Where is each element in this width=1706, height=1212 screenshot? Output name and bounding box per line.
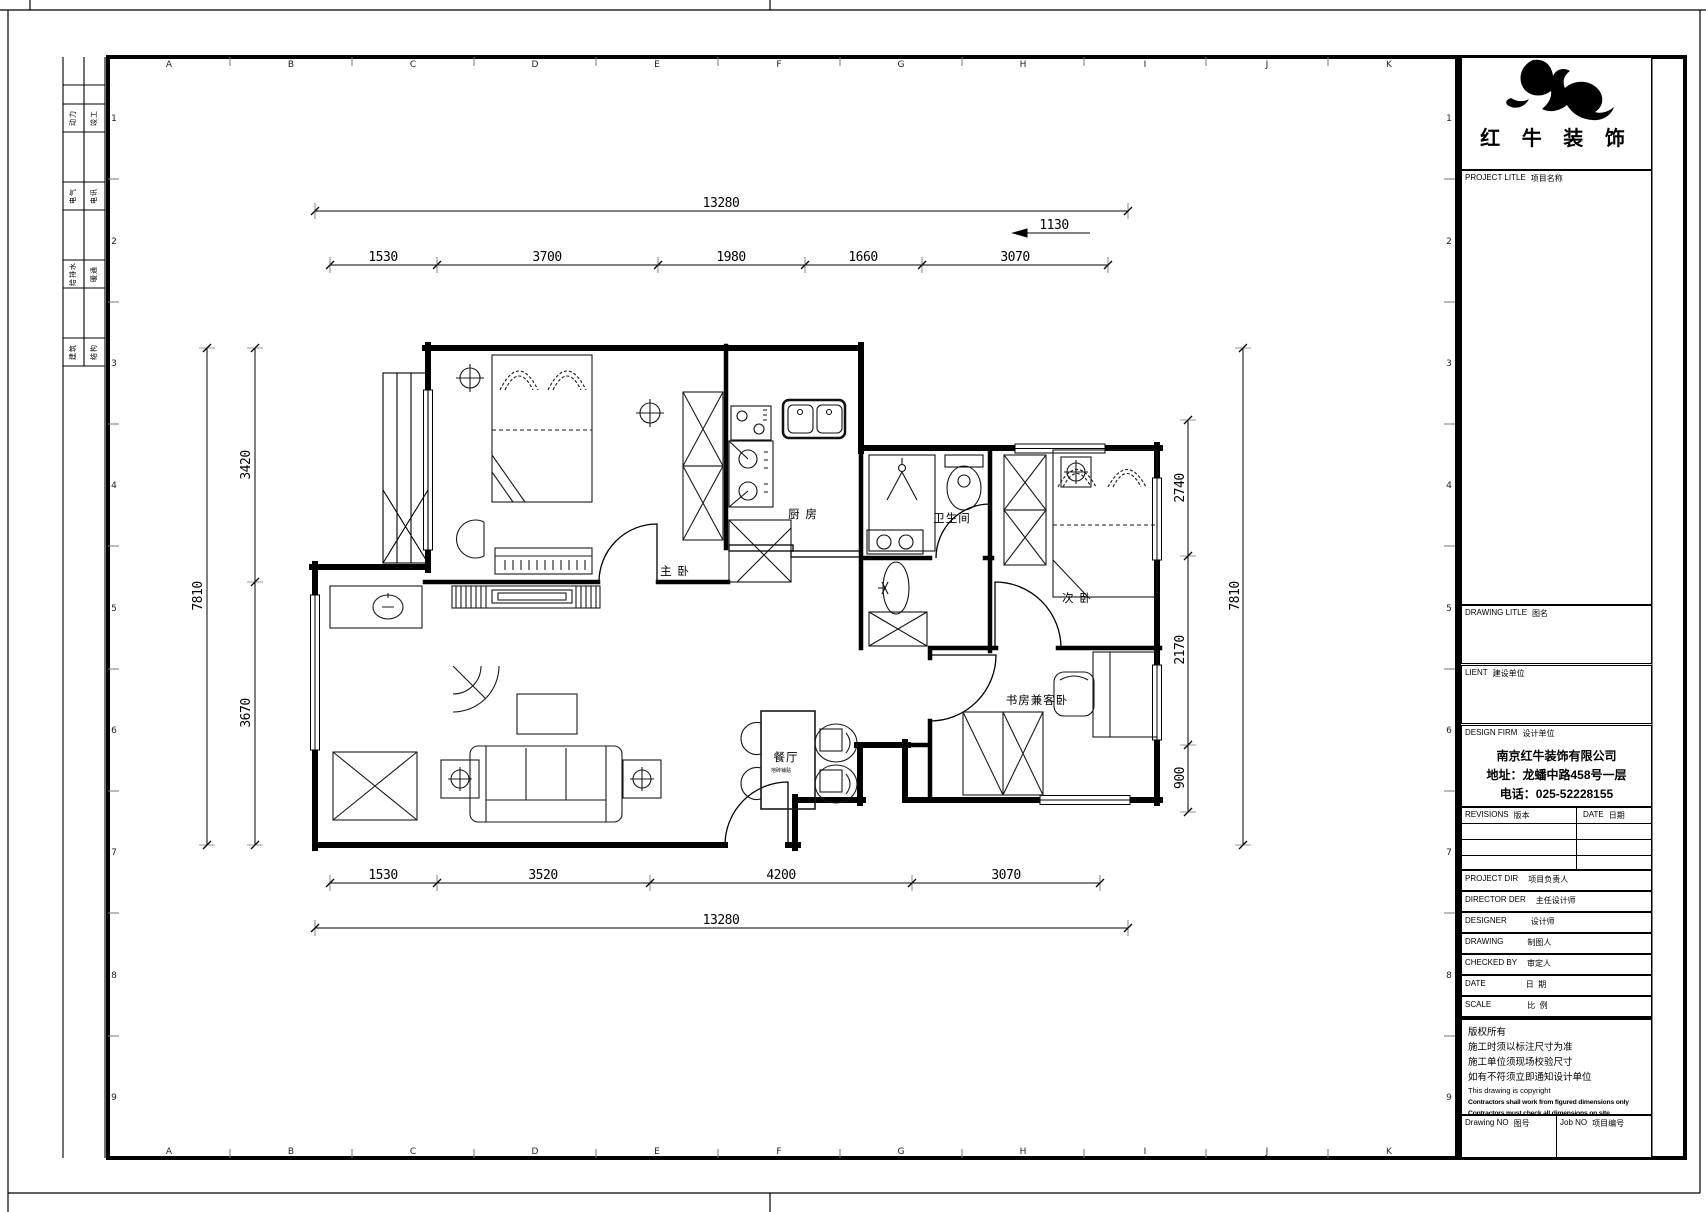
svg-text:3: 3	[1446, 359, 1452, 369]
svg-text:B: B	[288, 60, 294, 70]
svg-text:2170: 2170	[1173, 635, 1188, 664]
strip-cell-label: 动力	[65, 101, 81, 135]
svg-text:1980: 1980	[716, 250, 745, 265]
design-firm-cell: DESIGN FIRM设计单位 南京红牛装饰有限公司 地址：龙蟠中路458号一层…	[1461, 725, 1652, 807]
checked-by-row: CHECKED BY审定人	[1461, 954, 1652, 975]
svg-text:1530: 1530	[368, 250, 397, 265]
svg-text:3: 3	[111, 359, 117, 369]
counter-appliance	[731, 406, 771, 440]
dim-top-offset: 1130	[1039, 218, 1068, 233]
project-title-cell: PROJECT LITLE项目名称	[1461, 170, 1652, 605]
strip-cell-label: 给排水	[65, 257, 81, 291]
svg-text:A: A	[166, 1147, 173, 1157]
svg-text:A: A	[166, 60, 173, 70]
corner-shelf	[453, 666, 499, 712]
interior-walls	[425, 346, 1160, 800]
strip-cell-label: 建筑	[65, 335, 81, 369]
svg-text:G: G	[898, 1147, 905, 1157]
wash-basin	[883, 562, 909, 614]
svg-text:1: 1	[111, 114, 117, 124]
second-bedroom-furniture	[1004, 450, 1157, 597]
side-cabinet	[330, 586, 422, 628]
pillow	[500, 371, 538, 390]
arrowhead	[1013, 229, 1027, 237]
svg-text:2: 2	[1446, 237, 1452, 247]
room-label-dining-note: 地砖铺贴	[771, 767, 791, 774]
svg-text:6: 6	[111, 726, 117, 736]
revisions-table: REVISIONS版本 DATE日期	[1461, 807, 1652, 870]
svg-text:J: J	[1265, 1147, 1269, 1157]
svg-text:3520: 3520	[528, 868, 557, 883]
date-row: DATE日 期	[1461, 975, 1652, 996]
svg-text:3070: 3070	[991, 868, 1020, 883]
svg-text:5: 5	[111, 604, 117, 614]
chair	[457, 520, 484, 558]
svg-text:7810: 7810	[1228, 581, 1243, 610]
svg-text:K: K	[1386, 1147, 1393, 1157]
svg-text:E: E	[654, 1147, 660, 1157]
kitchen-slider-panel	[729, 545, 793, 551]
svg-text:C: C	[410, 60, 416, 70]
svg-text:900: 900	[1173, 767, 1188, 789]
svg-text:H: H	[1020, 60, 1027, 70]
svg-text:9: 9	[1446, 1093, 1452, 1103]
copyright-cell: 版权所有 施工时须以标注尺寸为准 施工单位须现场校验尺寸 如有不符须立即通知设计…	[1461, 1017, 1652, 1115]
director-row: DIRECTOR DER主任设计师	[1461, 891, 1652, 912]
svg-text:D: D	[532, 1147, 539, 1157]
svg-text:8: 8	[111, 971, 117, 981]
tv	[492, 590, 572, 603]
grid-letters-top: AB CD EF GH IJ K	[166, 60, 1393, 70]
master-bedroom-furniture	[456, 355, 723, 574]
room-label-second: 次 卧	[1062, 591, 1092, 605]
svg-text:B: B	[288, 1147, 294, 1157]
firm-info: 南京红牛装饰有限公司 地址：龙蟠中路458号一层 电话：025-52228155	[1462, 747, 1651, 804]
svg-text:3670: 3670	[239, 698, 254, 727]
svg-text:2: 2	[111, 237, 117, 247]
svg-text:3700: 3700	[532, 250, 561, 265]
svg-text:2740: 2740	[1173, 473, 1188, 502]
tv-console	[452, 586, 600, 608]
svg-text:H: H	[1020, 1147, 1027, 1157]
project-dir-row: PROJECT DIR项目负责人	[1461, 870, 1652, 891]
svg-text:4200: 4200	[766, 868, 795, 883]
svg-text:1530: 1530	[368, 868, 397, 883]
strip-cell-label: 电气	[65, 179, 81, 213]
svg-text:8: 8	[1446, 971, 1452, 981]
coffee-table	[517, 694, 577, 734]
signature-strip	[63, 57, 105, 1158]
desk	[1093, 652, 1157, 737]
svg-text:I: I	[1144, 1147, 1147, 1157]
client-cell: LIENT建设单位	[1461, 665, 1652, 724]
drawing-title-cell: DRAWING LITLE图名	[1461, 605, 1652, 664]
grid-numbers-right: 12 34 56 78 9	[1446, 114, 1452, 1103]
dim-top-total: 13280	[703, 196, 740, 211]
room-label-dining: 餐厅	[774, 750, 799, 764]
svg-text:3070: 3070	[1000, 250, 1029, 265]
designer-row: DESIGNER设计师	[1461, 912, 1652, 933]
toilet-tank	[945, 455, 983, 467]
vanity-counter	[867, 530, 923, 554]
svg-text:J: J	[1265, 60, 1269, 70]
drawing-no: Drawing NO图号	[1462, 1116, 1557, 1157]
grid-numbers-left: 12 34 56 78 9	[111, 114, 117, 1103]
drawing-sheet: AB CD EF GH IJ K AB CD EF GH IJ K 12 34 …	[0, 0, 1706, 1212]
dimension-labels: 13280 1130 1530 3700 1980 1660 3070 1530…	[191, 196, 1243, 928]
svg-text:F: F	[776, 60, 781, 70]
company-name: 红 牛 装 饰	[1480, 122, 1633, 151]
balcony	[383, 373, 428, 563]
floor-plan-canvas: AB CD EF GH IJ K AB CD EF GH IJ K 12 34 …	[0, 0, 1706, 1212]
company-logo	[1497, 58, 1617, 122]
svg-text:1660: 1660	[848, 250, 877, 265]
svg-text:1: 1	[1446, 114, 1452, 124]
room-label-master: 主 卧	[660, 564, 690, 578]
dim-bottom-total: 13280	[703, 913, 740, 928]
toilet	[947, 466, 981, 510]
svg-text:G: G	[898, 60, 905, 70]
job-no: Job NO项目编号	[1557, 1116, 1651, 1157]
kitchen-furniture	[729, 400, 845, 582]
svg-text:E: E	[654, 60, 660, 70]
room-label-study: 书房兼客卧	[1006, 693, 1069, 707]
windows	[311, 390, 1162, 805]
svg-text:I: I	[1144, 60, 1147, 70]
grid-letters-bottom: AB CD EF GH IJ K	[166, 1147, 1393, 1157]
living-dining-furniture	[330, 586, 857, 822]
exterior-walls	[312, 345, 1160, 848]
drawing-number-cell: Drawing NO图号 Job NO项目编号	[1461, 1115, 1652, 1158]
brand-cell: 红 牛 装 饰	[1461, 57, 1652, 170]
sofa	[470, 746, 622, 822]
dining-chair	[741, 723, 761, 755]
pillow	[548, 371, 586, 390]
dining-chair	[815, 724, 857, 762]
study-furniture	[963, 652, 1157, 795]
svg-text:4: 4	[1446, 481, 1452, 491]
svg-text:7: 7	[111, 848, 117, 858]
drawing-row: DRAWING制图人	[1461, 933, 1652, 954]
room-label-kitchen: 厨 房	[788, 507, 818, 521]
svg-text:7810: 7810	[191, 581, 206, 610]
strip-cell-label: 电讯	[86, 179, 102, 213]
kitchen-sink	[783, 400, 845, 438]
svg-text:D: D	[532, 60, 539, 70]
svg-text:F: F	[776, 1147, 781, 1157]
strip-cell-label: 暖通	[86, 257, 102, 291]
svg-text:6: 6	[1446, 726, 1452, 736]
svg-text:C: C	[410, 1147, 416, 1157]
scale-row: SCALE比 例	[1461, 996, 1652, 1017]
strip-cell-label: 结构	[86, 335, 102, 369]
strip-cell-label: 竣工	[86, 101, 102, 135]
svg-text:4: 4	[111, 481, 117, 491]
bathroom-fixtures	[867, 455, 983, 646]
title-block: 红 牛 装 饰 PROJECT LITLE项目名称 DRAWING LITLE图…	[1461, 57, 1652, 1158]
svg-text:5: 5	[1446, 604, 1452, 614]
svg-text:7: 7	[1446, 848, 1452, 858]
room-label-bath: 卫生间	[933, 511, 971, 525]
svg-text:3420: 3420	[239, 450, 254, 479]
kitchen-slider-panel	[791, 551, 861, 557]
svg-text:9: 9	[111, 1093, 117, 1103]
svg-text:K: K	[1386, 60, 1393, 70]
